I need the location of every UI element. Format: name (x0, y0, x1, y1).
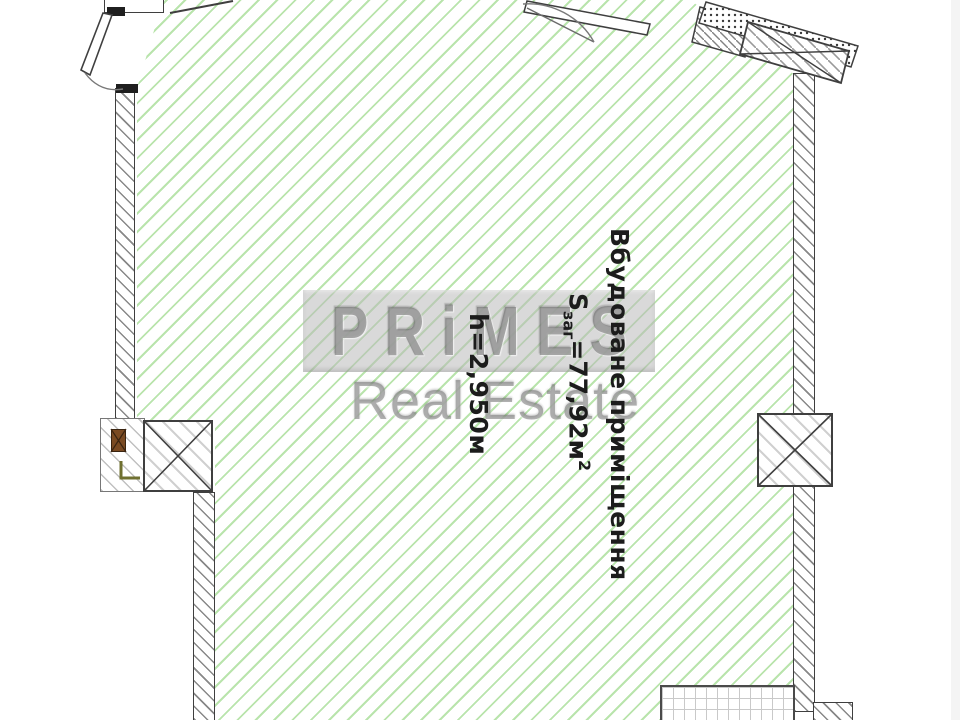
wall-left-upper (115, 88, 135, 420)
right-edge-strip (951, 0, 960, 720)
shaft-grid-box (660, 685, 795, 720)
column-left (143, 420, 213, 492)
room-name-label: Вбудоване приміщення (607, 228, 632, 581)
door-hinge-lower (116, 84, 138, 93)
area-value: =77,92м (564, 339, 593, 459)
watermark-letter: R (385, 296, 425, 366)
door-leaf-left (81, 13, 112, 75)
ceiling-height-label: h=2,950м (466, 313, 491, 455)
room-area-label: Sзаг=77,92м2 (561, 293, 592, 471)
floor-plan: P R i M E S Real Estate Вбудоване приміщ… (0, 0, 960, 720)
column-right (757, 413, 833, 487)
wall-right (793, 73, 815, 712)
area-superscript: 2 (575, 460, 594, 471)
wall-bottom-right-step (813, 702, 853, 720)
window-frame-wood-block (111, 429, 126, 452)
watermark-letter: i (441, 296, 457, 366)
watermark-letter: P (331, 296, 368, 366)
area-subscript: заг (560, 311, 579, 339)
door-hinge-upper (107, 7, 125, 16)
area-symbol: S (564, 293, 593, 311)
wall-left-lower (193, 492, 215, 720)
